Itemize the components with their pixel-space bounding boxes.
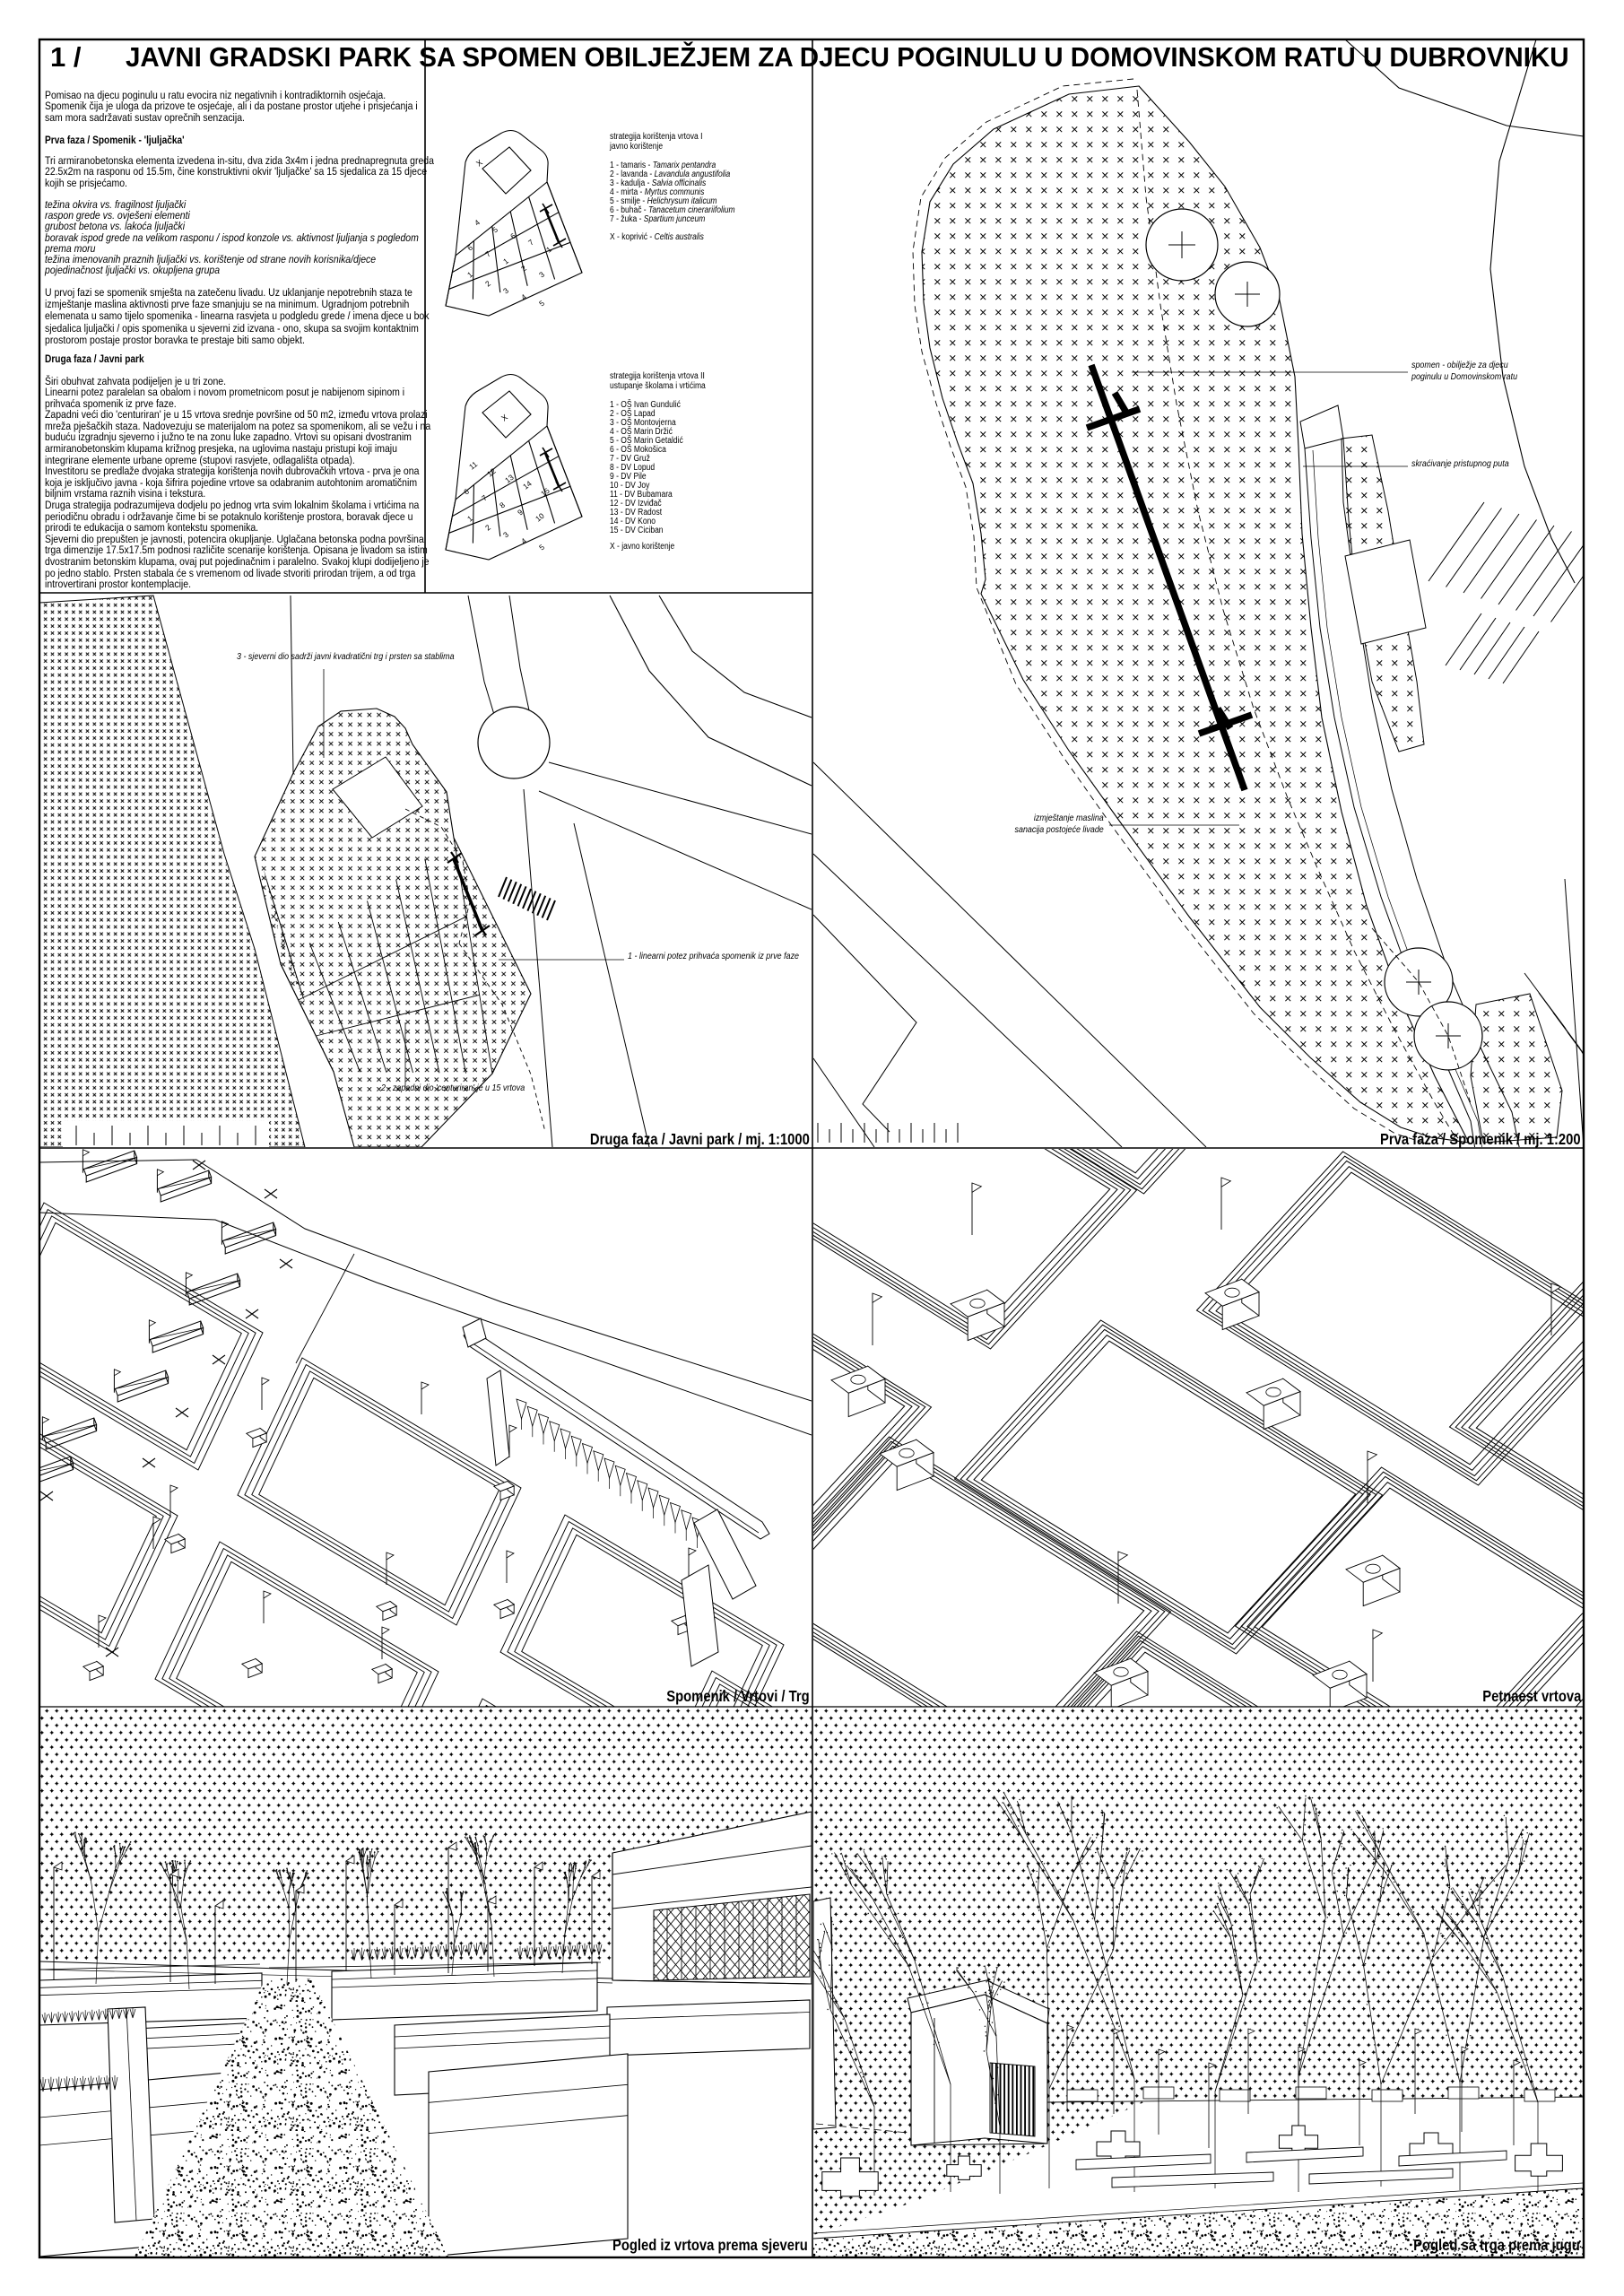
svg-text:8: 8 xyxy=(498,500,507,510)
svg-text:X: X xyxy=(499,413,509,423)
svg-text:2: 2 xyxy=(483,279,492,289)
svg-text:3: 3 xyxy=(501,286,510,296)
svg-text:5: 5 xyxy=(491,225,499,235)
svg-text:3: 3 xyxy=(537,270,546,280)
svg-text:4: 4 xyxy=(519,536,528,546)
svg-text:2: 2 xyxy=(483,523,492,533)
svg-text:7: 7 xyxy=(480,493,489,503)
svg-text:5: 5 xyxy=(537,299,546,309)
svg-text:11: 11 xyxy=(467,459,479,471)
svg-text:13: 13 xyxy=(503,473,516,485)
svg-text:4: 4 xyxy=(519,292,528,302)
svg-text:1: 1 xyxy=(501,257,510,266)
svg-text:4: 4 xyxy=(473,218,482,228)
svg-text:3: 3 xyxy=(501,530,510,540)
svg-text:10: 10 xyxy=(534,511,546,524)
svg-text:14: 14 xyxy=(521,479,534,491)
svg-text:5: 5 xyxy=(537,543,546,552)
svg-text:X: X xyxy=(474,158,484,169)
svg-text:7: 7 xyxy=(526,238,535,248)
svg-text:12: 12 xyxy=(485,466,498,479)
svg-text:2: 2 xyxy=(519,264,528,274)
svg-text:15: 15 xyxy=(539,486,551,499)
